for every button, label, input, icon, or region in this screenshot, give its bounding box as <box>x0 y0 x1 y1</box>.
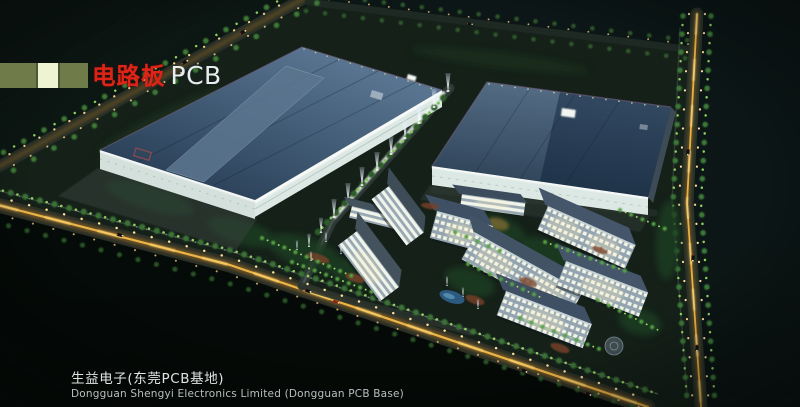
caption: 生益电子(东莞PCB基地) Dongguan Shengyi Electroni… <box>71 371 404 401</box>
bar-segment-olive-1 <box>0 63 36 88</box>
category-title-chinese: 电路板 <box>92 57 166 91</box>
page-title: 电路板 PCB <box>92 57 222 91</box>
title-block: 电路板 PCB <box>0 59 222 89</box>
title-color-bar <box>0 63 88 88</box>
bar-divider <box>58 63 60 88</box>
bar-segment-pale <box>38 63 58 88</box>
caption-english: Dongguan Shengyi Electronics Limited (Do… <box>71 388 404 401</box>
category-title-english: PCB <box>171 61 222 90</box>
rendering-page: 电路板 PCB 生益电子(东莞PCB基地) Dongguan Shengyi E… <box>0 0 800 407</box>
bar-divider <box>36 63 38 88</box>
bar-segment-olive-2 <box>60 63 88 88</box>
caption-chinese: 生益电子(东莞PCB基地) <box>71 371 404 387</box>
